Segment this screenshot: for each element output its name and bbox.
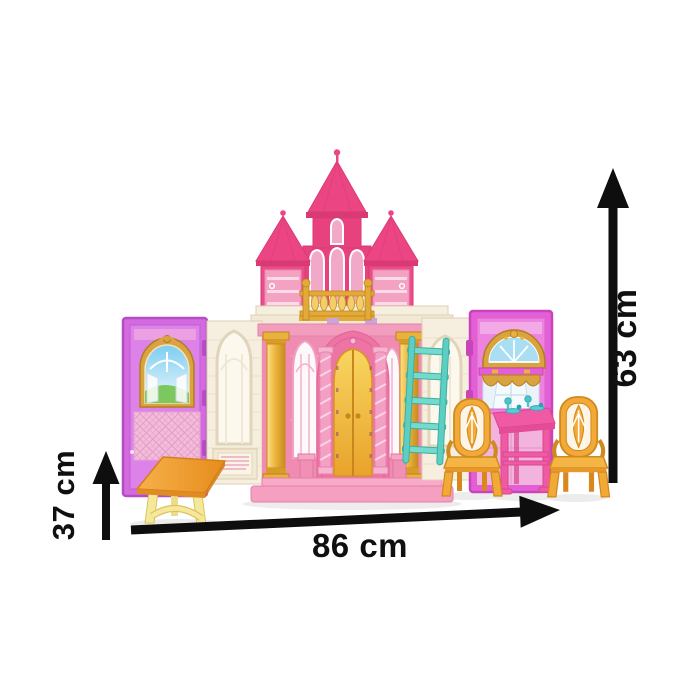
height-label: 63 cm	[606, 289, 644, 388]
left-tower	[256, 210, 310, 315]
gothic-window-left	[217, 331, 251, 444]
facade-window-left	[293, 341, 317, 458]
width-label: 86 cm	[312, 527, 408, 564]
central-tower	[303, 149, 371, 314]
gold-column-left	[263, 332, 289, 484]
arrow-up-icon	[597, 168, 629, 208]
entry-portal	[317, 331, 389, 478]
quilted-wall	[134, 412, 200, 460]
right-tower	[364, 210, 418, 315]
arched-window	[140, 336, 194, 408]
castle-towers	[256, 149, 418, 315]
left-stone-wall	[207, 321, 262, 484]
castle-scene: 86 cm 63 cm 37 cm	[0, 0, 700, 700]
depth-label: 37 cm	[46, 450, 81, 540]
arrow-up-icon	[93, 451, 120, 484]
height-dimension: 63 cm	[597, 168, 644, 483]
product-image: 86 cm 63 cm 37 cm	[0, 0, 700, 700]
dining-chair-right	[548, 397, 610, 497]
depth-dimension: 37 cm	[46, 450, 120, 540]
